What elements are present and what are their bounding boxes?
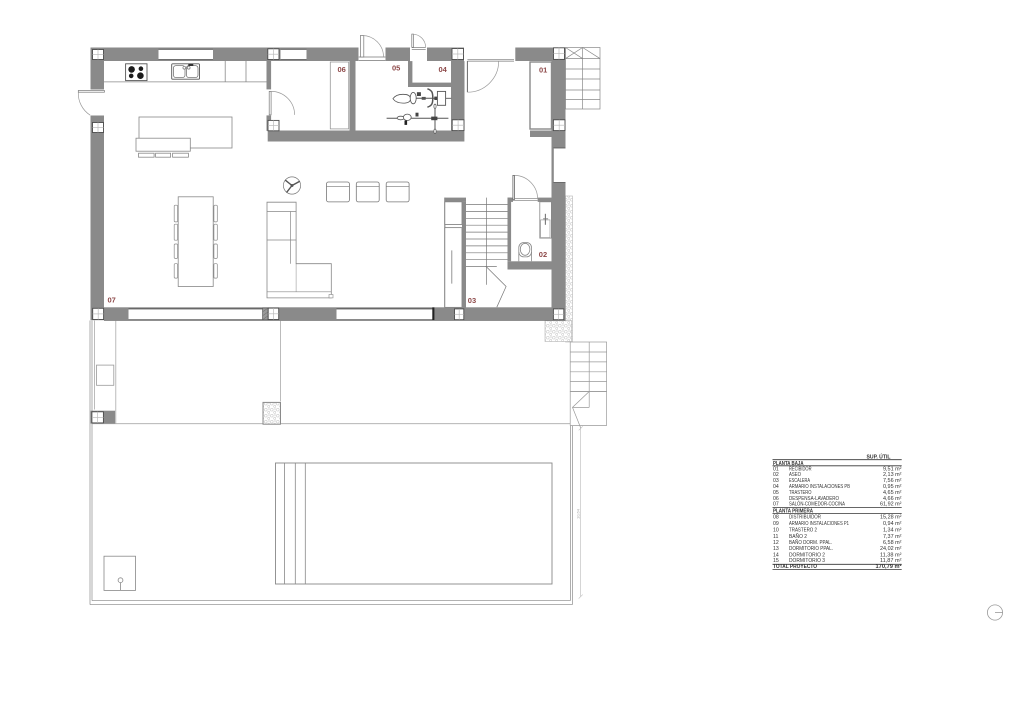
svg-text:10,64: 10,64 [576, 508, 581, 519]
svg-text:ARMARIO INSTALACIONES P1: ARMARIO INSTALACIONES P1 [789, 521, 849, 527]
svg-text:04: 04 [439, 65, 448, 74]
svg-text:02: 02 [539, 250, 547, 259]
svg-text:TRASTERO 2: TRASTERO 2 [789, 528, 817, 534]
svg-text:06: 06 [338, 65, 346, 74]
svg-text:07: 07 [108, 296, 116, 305]
svg-text:1,34 m²: 1,34 m² [883, 528, 902, 534]
svg-text:BAÑO DORM. PPAL.: BAÑO DORM. PPAL. [789, 539, 832, 546]
svg-text:09: 09 [773, 521, 779, 527]
svg-text:7,37 m²: 7,37 m² [883, 534, 902, 540]
svg-text:12: 12 [773, 540, 779, 546]
svg-text:DORMITORIO PPAL.: DORMITORIO PPAL. [789, 546, 833, 552]
svg-text:SALÓN-COMEDOR-COCINA: SALÓN-COMEDOR-COCINA [789, 501, 845, 508]
svg-text:08: 08 [773, 515, 779, 521]
svg-text:24,02 m²: 24,02 m² [880, 546, 902, 552]
svg-text:05: 05 [392, 64, 400, 73]
svg-text:03: 03 [468, 296, 476, 305]
svg-text:13: 13 [773, 546, 779, 552]
svg-text:61,92 m²: 61,92 m² [880, 502, 902, 508]
svg-text:11: 11 [773, 534, 778, 540]
svg-text:07: 07 [773, 502, 779, 508]
svg-text:170,79 m²: 170,79 m² [876, 563, 902, 570]
svg-text:6,58 m²: 6,58 m² [883, 540, 902, 546]
svg-text:15,28 m²: 15,28 m² [880, 515, 902, 521]
svg-text:DISTRIBUIDOR: DISTRIBUIDOR [789, 515, 821, 521]
svg-text:01: 01 [539, 66, 547, 75]
svg-text:10: 10 [773, 528, 779, 534]
svg-text:0,94 m²: 0,94 m² [883, 521, 902, 527]
svg-text:BAÑO 2: BAÑO 2 [789, 533, 807, 540]
